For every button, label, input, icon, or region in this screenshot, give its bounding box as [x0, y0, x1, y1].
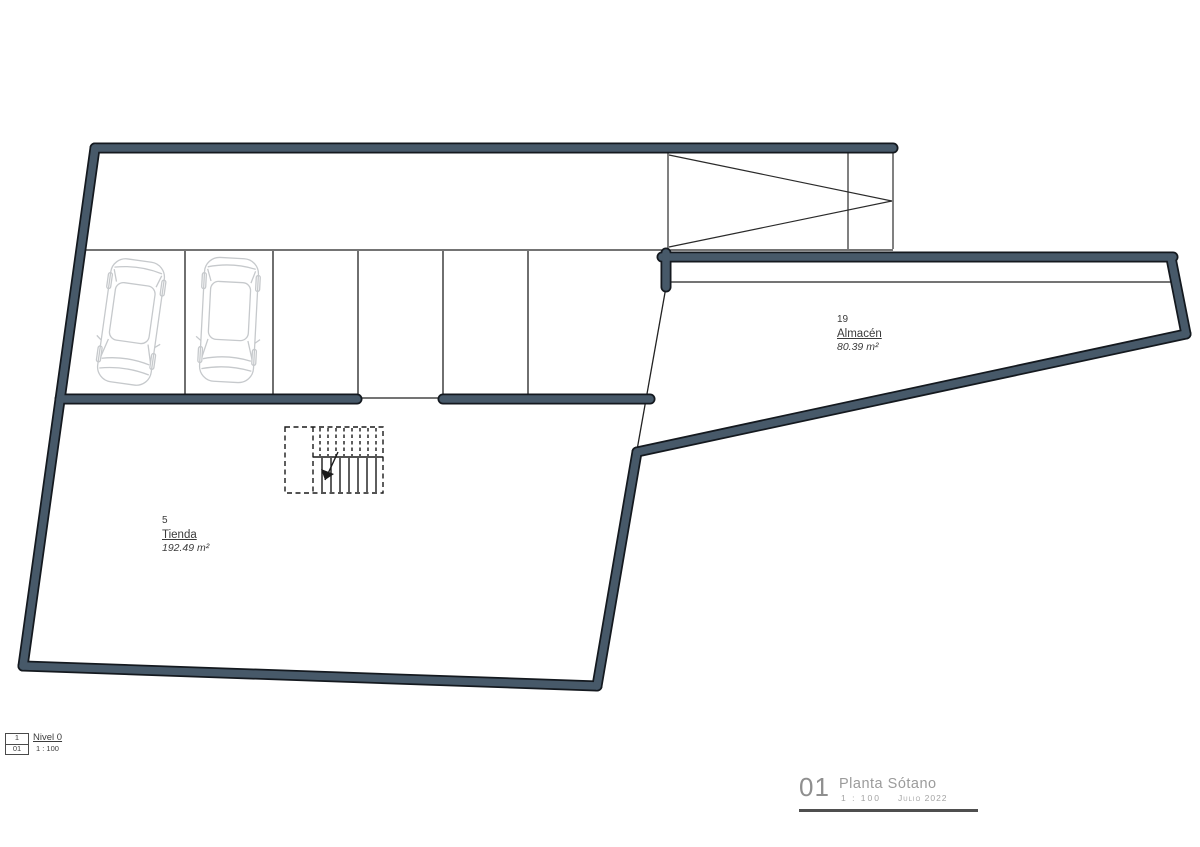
level-ref-bottom: 01 — [5, 744, 29, 753]
cars — [91, 256, 265, 388]
ramp-icon — [668, 153, 893, 249]
room-name: Almacén — [837, 327, 882, 341]
level-ref-top: 1 — [5, 733, 29, 742]
sheet-date: Julio 2022 — [898, 793, 948, 803]
room-number: 5 — [162, 515, 209, 528]
level-scale: 1 : 100 — [36, 744, 59, 753]
room-number: 19 — [837, 314, 882, 327]
level-name: Nivel 0 — [33, 732, 62, 743]
floor-plan-page: { "plan": { "wall_color": "#475969", "wa… — [0, 0, 1200, 847]
title-block-rule — [799, 809, 978, 812]
room-name: Tienda — [162, 528, 209, 542]
room-area: 80.39 m² — [837, 341, 882, 354]
sheet-title: Planta Sótano — [839, 776, 937, 792]
partition-lines — [80, 250, 1179, 450]
room-area: 192.49 m² — [162, 542, 209, 555]
title-block: 01 Planta Sótano 1 : 100 Julio 2022 — [799, 772, 979, 817]
car-icon — [91, 256, 172, 388]
parking-stall-dividers — [185, 251, 528, 396]
sheet-scale: 1 : 100 — [841, 793, 881, 803]
walls — [23, 148, 1186, 686]
car-icon — [194, 256, 264, 383]
floor-plan-drawing — [0, 0, 1200, 847]
stair-arrow-icon — [321, 452, 338, 480]
walls-outline — [23, 148, 1186, 686]
room-label-almacen: 19 Almacén 80.39 m² — [837, 314, 882, 354]
sheet-number: 01 — [799, 772, 830, 803]
room-label-tienda: 5 Tienda 192.49 m² — [162, 515, 209, 555]
staircase-icon — [285, 427, 383, 493]
